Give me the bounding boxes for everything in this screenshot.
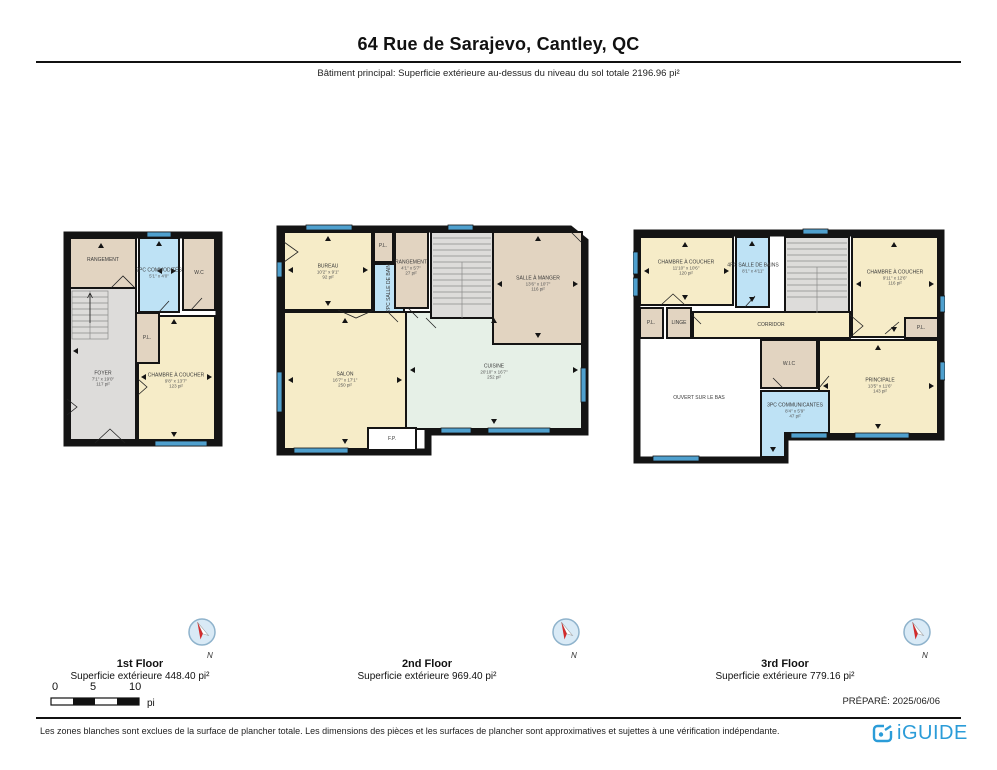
room-label-pl: P.L. (379, 243, 387, 249)
floor2-caption: 2nd Floor Superficie extérieure 969.40 p… (317, 658, 537, 682)
room-label-powder: 2PC COMMODITÉS5'1" x 4'0" (136, 267, 182, 278)
scale-unit: pi (147, 698, 155, 709)
room-label-bain: 2PC SALLE DE BAIN (386, 264, 392, 312)
floorplan-page: 64 Rue de Sarajevo, Cantley, QC Bâtiment… (0, 0, 997, 770)
footer-disclaimer: Les zones blanches sont exclues de la su… (40, 726, 870, 736)
room-label-corridor: CORRIDOR (757, 322, 784, 328)
page-title: 64 Rue de Sarajevo, Cantley, QC (0, 34, 997, 55)
floor-plan-1: RANGEMENT 2PC COMMODITÉS5'1" x 4'0" W.C … (63, 231, 223, 447)
floor-plan-3: CHAMBRE À COUCHER11'10" x 10'6"120 pi² 4… (633, 226, 945, 466)
room-label-pl-left: P.L. (647, 320, 655, 326)
iguide-logo-text: iGUIDE (897, 722, 968, 745)
room-label-rangement: RANGEMENT (87, 257, 119, 263)
floor-plan-2-drawing (276, 222, 591, 462)
floor1-caption: 1st Floor Superficie extérieure 448.40 p… (30, 658, 250, 682)
iguide-logo: iGUIDE (872, 722, 968, 745)
scale-bar: 0 5 10 pi (50, 681, 210, 707)
room-label-ouvert: OUVERT SUR LE BAS (673, 395, 725, 401)
room-label-fp: F.P. (388, 436, 396, 442)
floor3-area: Superficie extérieure 779.16 pi² (675, 671, 895, 682)
title-divider (36, 61, 961, 63)
room-label-ensuite: 3PC COMMUNICANTES8'4" x 5'9"47 pi² (767, 403, 823, 420)
scale-bar-graphic (50, 697, 145, 707)
room-label-bain-4pc: 4PC SALLE DE BAINS8'1" x 4'11" (727, 262, 778, 273)
room-label-principale: PRINCIPALE13'5" x 11'6"143 pi² (865, 378, 894, 395)
room-label-cuisine: CUISINE20'10" x 16'7"252 pi² (480, 364, 507, 381)
room-label-foyer: FOYER7'1" x 19'0"117 pi² (92, 371, 114, 388)
room-label-chambre-2: CHAMBRE À COUCHER9'11" x 12'6"116 pi² (867, 270, 923, 287)
floor3-name: 3rd Floor (675, 658, 895, 670)
footer-divider (36, 717, 961, 719)
room-label-wic: W.I.C (783, 361, 795, 367)
room-label-salon: SALON16'7" x 17'1"250 pi² (333, 372, 358, 389)
floor-plan-2: BUREAU10'2" x 9'1"92 pi² P.L. 2PC SALLE … (276, 222, 591, 462)
scale-tick-5: 5 (90, 681, 96, 693)
floor2-name: 2nd Floor (317, 658, 537, 670)
room-label-chambre: CHAMBRE À COUCHER9'8" x 13'7"123 pi² (148, 373, 204, 390)
room-label-linge: LINGE (671, 320, 686, 326)
scale-tick-0: 0 (52, 681, 58, 693)
floor3-caption: 3rd Floor Superficie extérieure 779.16 p… (675, 658, 895, 682)
scale-tick-10: 10 (129, 681, 141, 693)
room-label-bureau: BUREAU10'2" x 9'1"92 pi² (317, 264, 339, 281)
scale-ticks: 0 5 10 pi (50, 681, 210, 695)
iguide-logo-icon (872, 723, 893, 744)
prepared-date: PRÉPARÉ: 2025/06/06 (640, 696, 940, 707)
room-label-chambre-1: CHAMBRE À COUCHER11'10" x 10'6"120 pi² (658, 260, 714, 277)
compass-icon-floor1: N (183, 615, 223, 661)
svg-text:N: N (571, 651, 577, 660)
floor2-area: Superficie extérieure 969.40 pi² (317, 671, 537, 682)
room-label-salle-a-manger: SALLE À MANGER13'6" x 10'7"116 pi² (516, 276, 560, 293)
room-label-pl: P.L. (143, 335, 151, 341)
room-label-wc: W.C (194, 270, 203, 276)
floor1-name: 1st Floor (30, 658, 250, 670)
compass-icon-floor2: N (547, 615, 587, 661)
compass-icon-floor3: N (898, 615, 938, 661)
room-label-pl-right: P.L. (917, 325, 925, 331)
page-subtitle: Bâtiment principal: Superficie extérieur… (0, 68, 997, 79)
room-label-rangement: RANGEMENT4'1" x 5'7"27 pi² (395, 260, 427, 277)
svg-text:N: N (922, 651, 928, 660)
